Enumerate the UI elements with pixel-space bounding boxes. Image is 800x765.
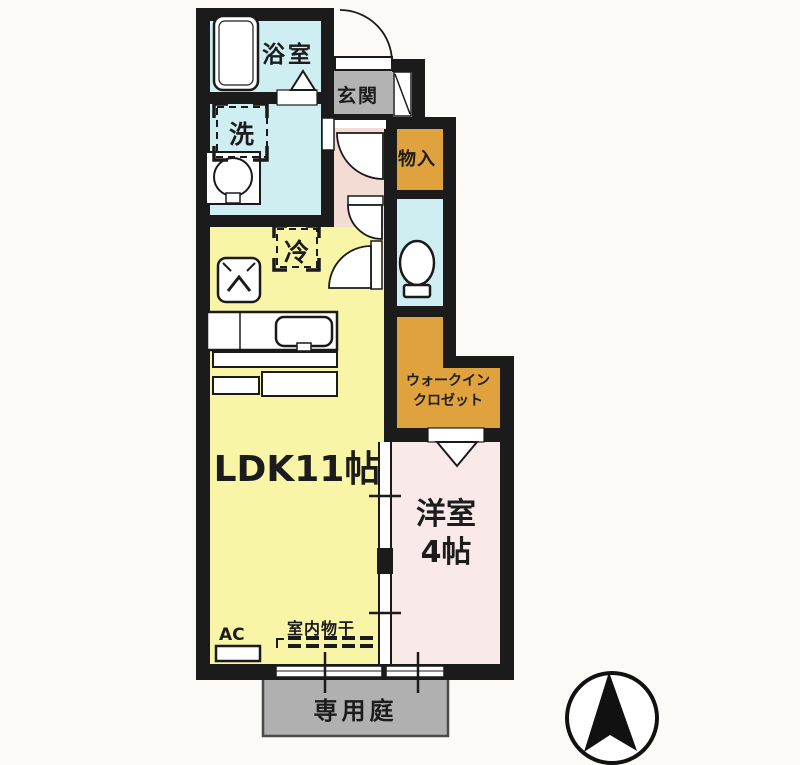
- ac-unit-box: [216, 646, 260, 661]
- western-room-size: 4帖: [421, 535, 472, 570]
- kitchen-sink-icon: [276, 317, 332, 346]
- ac-label: AC: [219, 625, 245, 645]
- kitchen-counter: [207, 312, 337, 396]
- bathroom-label: 浴室: [262, 35, 314, 69]
- private-garden-label: 専用庭: [263, 691, 448, 726]
- entrance-closet-door: [394, 72, 411, 116]
- front-door: [335, 10, 392, 70]
- western-room-name: 洋室: [416, 497, 476, 532]
- bathtub-icon: [214, 16, 258, 90]
- front-door-swing-arc: [340, 10, 392, 62]
- entrance-step: [333, 120, 386, 128]
- partition-wall-segment: [377, 548, 393, 574]
- walk-in-closet-label-line2: クロゼット: [413, 393, 483, 409]
- entrance-label: 玄関: [337, 81, 379, 108]
- refrigerator-label: 冷: [284, 233, 309, 269]
- walk-in-closet-label-line1: ウォークイン: [406, 373, 490, 389]
- compass-north-icon: [567, 672, 657, 763]
- storage-label: 物入: [398, 145, 436, 171]
- ldk-label: LDK11帖: [210, 440, 384, 492]
- western-room-label: 洋室4帖: [392, 496, 500, 571]
- walk-in-closet-label: ウォークインクロゼット: [394, 371, 502, 412]
- washing-machine-label: 洗: [229, 115, 254, 151]
- indoor-drying-label: 室内物干: [287, 615, 355, 639]
- stove-icon: [218, 258, 260, 302]
- toilet-icon: [400, 241, 434, 297]
- floor-plan: 浴室 玄関 物入 洗 冷 LDK11帖 ウォークインクロゼット 洋室4帖 AC …: [0, 0, 800, 765]
